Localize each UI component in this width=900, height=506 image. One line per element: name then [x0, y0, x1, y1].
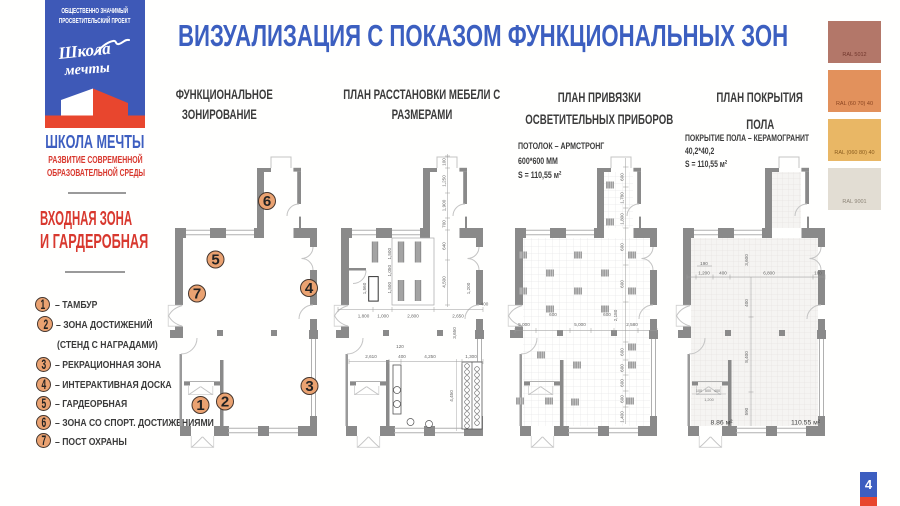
svg-text:7: 7 [193, 286, 201, 303]
svg-text:2,180: 2,180 [613, 309, 618, 321]
svg-text:8,400: 8,400 [744, 351, 749, 363]
svg-text:3,650: 3,650 [452, 327, 457, 339]
svg-text:190: 190 [700, 261, 708, 266]
svg-text:1,500: 1,500 [387, 282, 392, 294]
svg-text:600: 600 [620, 395, 625, 403]
svg-text:1,780: 1,780 [620, 192, 625, 204]
svg-text:100: 100 [696, 389, 702, 393]
svg-text:590: 590 [744, 407, 749, 415]
svg-text:4,500: 4,500 [442, 276, 447, 288]
svg-text:2: 2 [221, 394, 229, 411]
svg-text:1,800: 1,800 [358, 314, 370, 319]
svg-text:640: 640 [442, 242, 447, 250]
svg-text:4: 4 [305, 280, 314, 297]
svg-text:1,300: 1,300 [465, 354, 477, 359]
svg-text:8.86 м²: 8.86 м² [710, 420, 733, 427]
svg-text:1,900: 1,900 [442, 199, 447, 211]
svg-text:600: 600 [620, 173, 625, 181]
svg-text:400: 400 [481, 302, 489, 307]
svg-text:600: 600 [620, 243, 625, 251]
svg-text:600: 600 [620, 364, 625, 372]
svg-text:400: 400 [719, 271, 727, 276]
svg-text:3: 3 [305, 378, 313, 395]
svg-text:600: 600 [549, 312, 557, 317]
svg-text:180: 180 [814, 271, 822, 276]
svg-text:1,500: 1,500 [387, 248, 392, 260]
svg-text:700: 700 [442, 220, 447, 228]
svg-text:2,580: 2,580 [626, 322, 638, 327]
svg-text:600: 600 [620, 379, 625, 387]
svg-text:5: 5 [211, 252, 219, 269]
svg-text:400: 400 [398, 354, 406, 359]
svg-text:100: 100 [442, 158, 447, 166]
svg-text:2,650: 2,650 [452, 314, 464, 319]
svg-text:6,800: 6,800 [763, 271, 775, 276]
svg-text:5,000: 5,000 [518, 322, 530, 327]
svg-text:400: 400 [714, 389, 720, 393]
svg-text:6: 6 [263, 193, 271, 210]
svg-text:1,200: 1,200 [704, 398, 714, 402]
svg-text:4,250: 4,250 [424, 354, 436, 359]
svg-text:2,800: 2,800 [407, 314, 419, 319]
svg-text:5,000: 5,000 [574, 322, 586, 327]
svg-text:400: 400 [744, 299, 749, 307]
svg-text:1,200: 1,200 [698, 271, 710, 276]
svg-text:1,800: 1,800 [620, 213, 625, 225]
svg-text:1,000: 1,000 [377, 314, 389, 319]
svg-text:1,560: 1,560 [362, 282, 367, 294]
svg-text:3,600: 3,600 [744, 254, 749, 266]
svg-text:120: 120 [396, 344, 404, 349]
svg-text:600: 600 [620, 348, 625, 356]
svg-text:1: 1 [196, 397, 204, 414]
svg-text:600: 600 [620, 280, 625, 288]
svg-text:1,200: 1,200 [466, 282, 471, 294]
svg-text:1,250: 1,250 [442, 175, 447, 187]
svg-text:500: 500 [705, 389, 711, 393]
svg-text:600: 600 [603, 312, 611, 317]
svg-text:1,050: 1,050 [387, 265, 392, 277]
svg-text:4,450: 4,450 [449, 390, 454, 402]
svg-text:1,400: 1,400 [620, 411, 625, 423]
svg-text:2,610: 2,610 [365, 354, 377, 359]
svg-text:110.55 м²: 110.55 м² [791, 420, 821, 427]
